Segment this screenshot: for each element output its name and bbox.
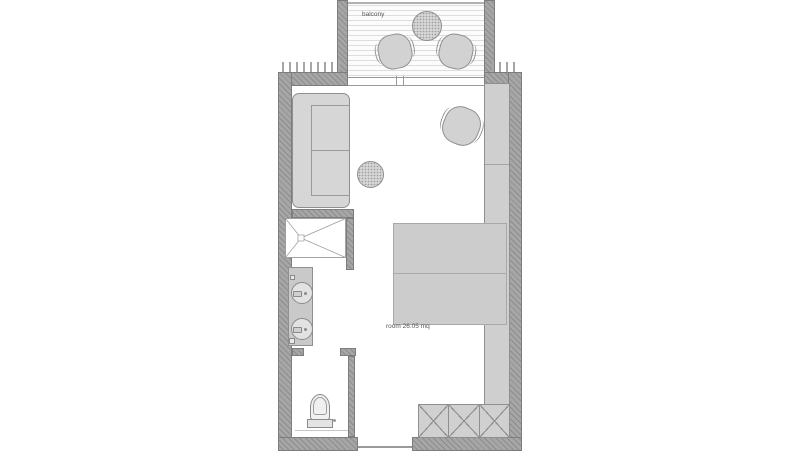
wc-wall-right [348, 356, 355, 437]
closet-x-panel [419, 405, 449, 437]
shower-partition-top [292, 209, 354, 218]
wc-partition-left-stub [292, 348, 304, 356]
coffee-table [357, 161, 384, 188]
shower-drain [298, 235, 304, 241]
sink [291, 318, 313, 340]
right-wall [508, 72, 522, 451]
toilet-flush-button [333, 419, 336, 422]
door-mullion-tick [396, 76, 397, 85]
entrance-door [358, 446, 412, 448]
crossed-closet [418, 404, 510, 438]
bed-divider-line [394, 273, 506, 274]
wall-insulation-ticks-right [492, 62, 520, 72]
closet-x-panel [449, 405, 479, 437]
room-area-label: room 26.05 mq [386, 323, 430, 330]
sofa [292, 93, 350, 208]
double-bed [393, 223, 507, 325]
left-wall [278, 72, 292, 451]
bottom-wall-right [412, 437, 522, 451]
toilet-bowl [310, 394, 330, 421]
balcony-label: balcony [362, 11, 384, 18]
wardrobe-divider-line [485, 164, 509, 165]
sofa-armrest-line [311, 195, 350, 196]
sofa-cushion-line [311, 150, 350, 151]
balcony-glass-door [348, 77, 484, 86]
door-mullion-tick [403, 76, 404, 85]
shower-tray [285, 218, 346, 258]
wc-threshold-line [295, 430, 348, 431]
toilet [307, 394, 333, 428]
shower-partition-right [346, 218, 354, 270]
wc-partition-right-stub [340, 348, 356, 356]
toilet-tank [307, 419, 333, 428]
wall-insulation-ticks-left [282, 62, 340, 72]
sofa-armrest-line [311, 105, 350, 106]
closet-x-panel [480, 405, 509, 437]
bathroom-fixture [290, 275, 295, 280]
balcony-table [412, 11, 442, 41]
bathroom-fixture [289, 338, 295, 344]
bottom-wall-left [278, 437, 358, 451]
sink [291, 282, 313, 304]
floor-plan: balcony [0, 0, 800, 458]
armchair [437, 101, 486, 150]
